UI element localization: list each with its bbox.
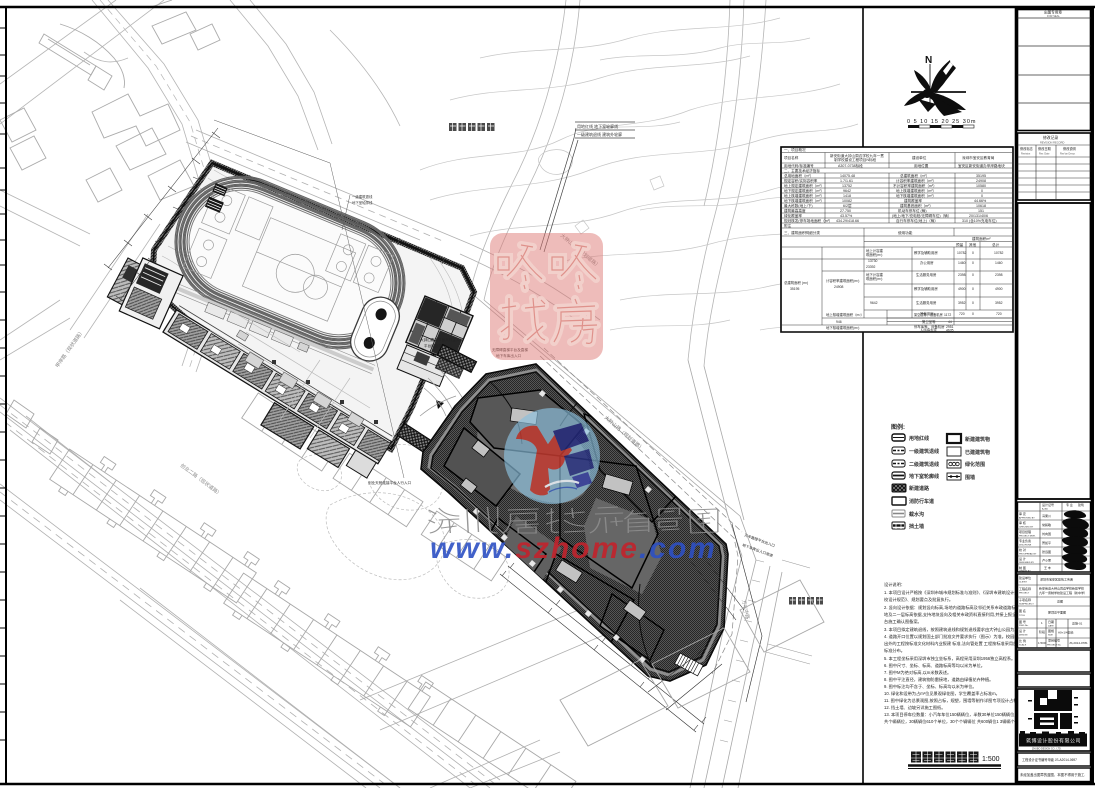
svg-text:审 核: 审 核: [1019, 520, 1026, 525]
svg-text:0: 0: [981, 189, 983, 193]
svg-text:筑博设计股份有限公司: 筑博设计股份有限公司: [1026, 738, 1081, 745]
svg-text:九年一贯制学校建设工程（新中学）: 九年一贯制学校建设工程（新中学）: [1039, 590, 1087, 595]
svg-text:制学校建设工程项目N标段: 制学校建设工程项目N标段: [834, 157, 877, 162]
svg-text:项目编号: 项目编号: [1048, 638, 1060, 643]
svg-text:13752: 13752: [842, 184, 852, 188]
svg-text:6. 图中尺寸、坐标、标高、道路标高等均以米为单位。: 6. 图中尺寸、坐标、标高、道路标高等均以米为单位。: [884, 662, 985, 669]
svg-text:比 例: 比 例: [1019, 638, 1026, 643]
svg-text:自行车停车位(地上)（辆）: 自行车停车位(地上)（辆）: [896, 218, 938, 223]
svg-text:新建建筑物: 新建建筑物: [965, 436, 990, 443]
svg-text:10082: 10082: [842, 199, 852, 203]
svg-text:已建建筑物: 已建建筑物: [965, 449, 990, 456]
svg-text:用地红线 地下室轮廓线: 用地红线 地下室轮廓线: [577, 123, 618, 129]
svg-text:阶段: 阶段: [1039, 629, 1045, 634]
svg-text:SCALE: SCALE: [1019, 644, 1027, 647]
svg-text:项目名称: 项目名称: [784, 155, 799, 160]
svg-text:总建筑面积 (m²): 总建筑面积 (m²): [784, 280, 808, 285]
svg-text:建设单位: 建设单位: [1019, 575, 1031, 580]
svg-text:二级建筑退线: 二级建筑退线: [909, 461, 939, 468]
svg-text:PROOFREAD BY: PROOFREAD BY: [1019, 553, 1037, 556]
svg-text:筑面积(m²): 筑面积(m²): [866, 276, 882, 281]
svg-text:14075.48: 14075.48: [840, 174, 855, 178]
svg-text:0: 0: [972, 261, 974, 265]
svg-text:720: 720: [996, 312, 1002, 316]
svg-text:一、项目概况: 一、项目概况: [784, 147, 806, 152]
svg-text:CHECKED BY: CHECKED BY: [1019, 527, 1034, 529]
svg-text:二、主要技术经济指标: 二、主要技术经济指标: [784, 168, 820, 173]
svg-text:总图: 总图: [1057, 599, 1063, 604]
svg-text:子项名称: 子项名称: [1019, 597, 1031, 602]
svg-text:1460: 1460: [995, 261, 1003, 265]
svg-text:20/131/40/6: 20/131/40/6: [969, 214, 988, 218]
svg-text:0: 0: [972, 312, 974, 316]
svg-text:35195: 35195: [790, 287, 800, 291]
svg-text:11. 图中绿化为总景观图,按照占标，规塑，围墙等制作详图专: 11. 图中绿化为总景观图,按照占标，规塑，围墙等制作详图专项设计占标记位于。: [884, 697, 1034, 704]
svg-text:DESIGNED BY: DESIGNED BY: [1019, 562, 1034, 564]
svg-text:310 (含10%充电车位): 310 (含10%充电车位): [962, 218, 997, 223]
svg-text:N: N: [925, 55, 932, 66]
svg-text:用地代码/标准编号: 用地代码/标准编号: [784, 163, 814, 168]
svg-text:修改记录: 修改记录: [1043, 135, 1058, 140]
svg-text:10618: 10618: [976, 204, 986, 208]
svg-text:用地位置: 用地位置: [914, 163, 929, 168]
svg-text:计容积率建筑面积（m²）: 计容积率建筑面积（m²）: [896, 178, 936, 183]
svg-text:总用地面积（m²）: 总用地面积（m²）: [784, 173, 813, 178]
svg-text:创业天桥连接平台人行入口: 创业天桥连接平台人行入口: [368, 480, 412, 485]
svg-text:贺如平: 贺如平: [1042, 540, 1051, 545]
svg-text:建筑: 建筑: [1078, 502, 1084, 507]
svg-text:DISCIPLINE: DISCIPLINE: [1019, 545, 1032, 547]
svg-text:7. 图中M为绝对标高,以m米数表述。: 7. 图中M为绝对标高,以m米数表述。: [884, 669, 951, 676]
svg-text:设计说明：: 设计说明：: [884, 581, 905, 588]
svg-text:REVISION RECORD: REVISION RECORD: [1040, 141, 1064, 145]
svg-text:DATE: DATE: [1048, 625, 1054, 628]
svg-text:3952: 3952: [995, 301, 1003, 305]
svg-text:10580: 10580: [976, 184, 986, 188]
svg-text:6/2层: 6/2层: [843, 203, 852, 208]
svg-text:0: 0: [972, 287, 974, 291]
svg-text:常毅敏: 常毅敏: [1042, 522, 1051, 527]
svg-text:2398: 2398: [995, 273, 1003, 277]
svg-text:审 定: 审 定: [1019, 511, 1026, 516]
svg-text:屋顶总平面图: 屋顶总平面图: [1048, 610, 1066, 615]
svg-text:办公用房: 办公用房: [920, 260, 934, 265]
svg-text:冯果川: 冯果川: [1042, 513, 1051, 518]
svg-text:深圳市宝安区教育局: 深圳市宝安区教育局: [962, 155, 995, 160]
svg-text:图 名: 图 名: [1019, 608, 1026, 613]
svg-text:标准分布。: 标准分布。: [884, 647, 905, 654]
svg-text:43.57%: 43.57%: [840, 214, 853, 218]
svg-text:DESIGN: DESIGN: [1019, 635, 1029, 637]
svg-text:项目经理: 项目经理: [1019, 529, 1031, 534]
svg-text:机动车停车位 (辆): 机动车停车位 (辆): [898, 208, 927, 213]
svg-text:围墙: 围墙: [965, 474, 975, 481]
svg-text:TITLE: TITLE: [1019, 615, 1025, 617]
svg-text:1:500: 1:500: [1038, 641, 1046, 645]
svg-text:946: 946: [836, 320, 842, 324]
svg-text:CLIENT: CLIENT: [1019, 582, 1027, 584]
svg-text:预留: 预留: [956, 242, 964, 247]
svg-text:地下核增建筑面积（m²）: 地下核增建筑面积（m²）: [784, 198, 824, 203]
svg-text:9642: 9642: [843, 189, 851, 193]
svg-text:一级建筑退线: 一级建筑退线: [352, 194, 373, 199]
svg-text:宝安区新安街道办甲岸路地块: 宝安区新安街道办甲岸路地块: [958, 163, 1005, 168]
svg-text:1418: 1418: [843, 194, 851, 198]
svg-text:地上核增建筑面积（m²）: 地上核增建筑面积（m²）: [896, 188, 936, 193]
svg-text:日期: 日期: [1048, 619, 1054, 624]
svg-text:台施工确认图备案。: 台施工确认图备案。: [884, 618, 922, 625]
svg-text:3. 本项目拟定建筑退线，按照建筑退线和规划退线要求由大钟山: 3. 本项目拟定建筑退线，按照建筑退线和规划退线要求由大钟山公园为准。: [884, 626, 1023, 633]
svg-text:地上核增建筑面积（m²）: 地上核增建筑面积（m²）: [826, 312, 864, 317]
svg-text:44.66%: 44.66%: [974, 199, 987, 203]
svg-text:建筑最高高度: 建筑最高高度: [784, 208, 806, 213]
svg-text:其他: 其他: [969, 242, 977, 247]
svg-text:SIZE: SIZE: [1048, 635, 1053, 637]
svg-text:深圳市宝安区建筑工务署: 深圳市宝安区建筑工务署: [1040, 577, 1073, 582]
svg-text:4900: 4900: [958, 287, 966, 291]
svg-text:地下室轮廓线: 地下室轮廓线: [909, 473, 939, 480]
svg-text:王 丰: 王 丰: [1044, 565, 1051, 570]
svg-text:地下核增建筑面积（m²）: 地下核增建筑面积（m²）: [896, 193, 936, 198]
svg-text:地及二一层标高依据,支持地块竖向及相关市政资料直接利用,并接: 地及二一层标高依据,支持地块竖向及相关市政资料直接利用,并接上报全规定平: [884, 611, 1029, 618]
svg-text:建筑面积m²: 建筑面积m²: [972, 236, 991, 241]
svg-text:1460: 1460: [958, 261, 966, 265]
svg-text:不计容积率建筑面积（m²）: 不计容积率建筑面积（m²）: [893, 183, 937, 188]
svg-text:三、建筑面积明细分类: 三、建筑面积明细分类: [784, 230, 820, 235]
svg-text:24908: 24908: [976, 179, 986, 183]
svg-text:建设单位: 建设单位: [912, 155, 927, 160]
svg-text:图幅: 图幅: [1048, 628, 1054, 633]
svg-text:大钟山路接平台人行主入口: 大钟山路接平台人行主入口: [420, 337, 464, 342]
svg-text:设 计: 设 计: [1019, 556, 1026, 561]
svg-text:消防行车道: 消防行车道: [909, 498, 934, 505]
svg-text:地下规定建筑面积（m²）: 地下规定建筑面积（m²）: [784, 188, 824, 193]
svg-text:A0+1/4加长: A0+1/4加长: [1058, 630, 1074, 635]
svg-text:教学及辅助用房: 教学及辅助用房: [914, 286, 938, 291]
svg-text:绿化覆盖率: 绿化覆盖率: [784, 213, 802, 218]
svg-text:校设计规范》、规划要点及批复执行。: 校设计规范》、规划要点及批复执行。: [884, 596, 953, 603]
svg-text:生活服务用房: 生活服务用房: [916, 272, 937, 277]
svg-text:地上核增建筑面积（m²）: 地上核增建筑面积（m²）: [784, 193, 824, 198]
svg-text:12. 挡土墙、边坡另详施工图纸。: 12. 挡土墙、边坡另详施工图纸。: [884, 704, 945, 711]
svg-text:修改日期: 修改日期: [1038, 146, 1051, 151]
svg-text:1:500: 1:500: [982, 756, 1000, 763]
svg-text:修改标志: 修改标志: [1020, 146, 1034, 151]
svg-text:SUBPROJECT: SUBPROJECT: [1019, 604, 1034, 606]
svg-text:5. 本工程坐标采用深圳市独立坐标系，高程采用深圳1956独: 5. 本工程坐标采用深圳市独立坐标系，高程采用深圳1956独立高程系。: [884, 655, 1015, 662]
svg-text:地下核增建筑面积(m²): 地下核增建筑面积(m²): [826, 325, 859, 330]
svg-text:绿化范围: 绿化范围: [965, 461, 985, 468]
svg-text:151: 151: [978, 209, 984, 213]
svg-text:44: 44: [948, 320, 952, 324]
svg-text:修改说明: 修改说明: [1063, 146, 1076, 151]
svg-text:计容积率建筑面积(m²): 计容积率建筑面积(m²): [826, 278, 859, 283]
svg-text:新建道路: 新建道路: [909, 485, 930, 492]
svg-text:设计证号: 设计证号: [1042, 502, 1054, 507]
svg-text:1.7/1.61: 1.7/1.61: [840, 179, 853, 183]
svg-text:10782: 10782: [957, 251, 967, 255]
svg-text:A307-0738标段: A307-0738标段: [838, 163, 863, 168]
svg-text:使用功能: 使用功能: [898, 230, 913, 235]
svg-text:筑面积(m²): 筑面积(m²): [866, 252, 882, 257]
svg-text:建筑覆盖率: 建筑覆盖率: [904, 198, 922, 203]
svg-text:720: 720: [959, 312, 965, 316]
svg-text:工程设计证书编号甲级 JS-A2014-0697: 工程设计证书编号甲级 JS-A2014-0697: [1022, 757, 1077, 762]
svg-text:地上规定建筑面积（m²）: 地上规定建筑面积（m²）: [784, 183, 824, 188]
svg-text:3952: 3952: [958, 301, 966, 305]
svg-text:专业负责: 专业负责: [1019, 538, 1031, 543]
svg-text:10. 绿化和设带为占m²位见景观绿花图，学生覆盖率占标准m: 10. 绿化和设带为占m²位见景观绿花图，学生覆盖率占标准m。: [884, 690, 1000, 697]
svg-text:警卫室等: 警卫室等: [922, 319, 936, 324]
svg-text:35195: 35195: [976, 174, 986, 178]
svg-text:0: 0: [972, 251, 974, 255]
svg-text:4900: 4900: [995, 287, 1003, 291]
svg-text:建筑基底面积（m²）: 建筑基底面积（m²）: [900, 203, 933, 208]
svg-text:Rev. Date: Rev. Date: [1039, 153, 1050, 156]
svg-text:0: 0: [972, 301, 974, 305]
svg-text:未经加盖出图章的蓝图，本图不得用于施工.: 未经加盖出图章的蓝图，本图不得用于施工.: [1020, 772, 1085, 777]
svg-text:刘向国: 刘向国: [1042, 531, 1051, 536]
svg-text:校 对: 校 对: [1019, 547, 1026, 552]
svg-text:新安街道大钟山周边学校新建学校: 新安街道大钟山周边学校新建学校: [1039, 586, 1084, 591]
svg-text:规定容积/实际容积率: 规定容积/实际容积率: [784, 178, 818, 183]
svg-text:专 业: 专 业: [1066, 502, 1073, 507]
svg-text:FOR SEAL: FOR SEAL: [1047, 14, 1060, 18]
svg-text:DWG No.: DWG No.: [1019, 625, 1029, 627]
svg-text:PROJECT MGR.: PROJECT MGR.: [1019, 536, 1036, 538]
svg-text:23392: 23392: [866, 265, 876, 269]
svg-text:A-360: A-360: [1042, 508, 1049, 511]
svg-text:Revision: Revision: [1021, 153, 1031, 156]
svg-text:挡土墙: 挡土墙: [908, 523, 924, 530]
svg-text:总计: 总计: [992, 242, 1000, 247]
svg-text:设 计: 设 计: [1019, 628, 1026, 633]
svg-text:2398: 2398: [958, 273, 966, 277]
svg-text:JS,2014-0781: JS,2014-0781: [1069, 641, 1088, 645]
svg-text:9. 图中标注均不含于、坐标、标高均以米为单位。: 9. 图中标注均不含于、坐标、标高均以米为单位。: [884, 683, 977, 690]
svg-text:架空层等、设备机房: 架空层等、设备机房: [914, 312, 943, 317]
svg-text:截水沟: 截水沟: [909, 511, 924, 518]
svg-text:8. 图中平注直径，建筑物防雷接地，道路由绿植花卉种植。: 8. 图中平注直径，建筑物防雷接地，道路由绿植花卉种植。: [884, 676, 993, 683]
svg-text:一级建筑退线: 一级建筑退线: [909, 448, 939, 455]
svg-text:平台绿化带: 平台绿化带: [424, 343, 442, 348]
svg-text:图例:: 图例:: [891, 423, 905, 431]
svg-text:Rev'ion Descr.: Rev'ion Descr.: [1060, 153, 1076, 156]
svg-text:制 图: 制 图: [1019, 565, 1026, 570]
svg-text:最大栋数(地上/下): 最大栋数(地上/下): [784, 203, 813, 208]
svg-text:1172: 1172: [944, 313, 951, 317]
svg-text:工程名称: 工程名称: [1019, 586, 1031, 591]
svg-text:24908: 24908: [834, 285, 844, 289]
svg-text:地下室轮廓线: 地下室轮廓线: [352, 200, 373, 205]
svg-text:ZHUBO DESIGN CO., LTD.: ZHUBO DESIGN CO., LTD.: [1032, 748, 1062, 751]
svg-text:生活服务用房: 生活服务用房: [916, 300, 937, 305]
svg-text:PROJECT: PROJECT: [1019, 593, 1030, 595]
svg-text:(地上/地下/充电桩/无障碍车位)（辆）: (地上/地下/充电桩/无障碍车位)（辆）: [892, 213, 951, 218]
svg-text:10782: 10782: [994, 251, 1004, 255]
svg-text:0: 0: [981, 194, 983, 198]
svg-text:规划核发(停车场地面积（m²）: 规划核发(停车场地面积（m²）: [784, 218, 833, 223]
svg-text:DRAWN BY: DRAWN BY: [1019, 570, 1031, 573]
svg-text:附注: 附注: [784, 223, 792, 228]
svg-text:434.29/418.66: 434.29/418.66: [836, 219, 859, 223]
svg-text:教学及辅助用房: 教学及辅助用房: [914, 250, 938, 255]
svg-text:27.750: 27.750: [840, 209, 851, 213]
svg-text:一级建筑退线 建筑外轮廓: 一级建筑退线 建筑外轮廓: [577, 131, 622, 137]
svg-text:APPROVED BY: APPROVED BY: [1019, 517, 1035, 520]
svg-text:0: 0: [972, 273, 974, 277]
svg-text:图 号: 图 号: [1019, 619, 1026, 624]
svg-text:13730: 13730: [868, 259, 878, 263]
svg-text:卢小荣: 卢小荣: [1042, 558, 1051, 563]
svg-text:0 5 10 15 20 25 30m: 0 5 10 15 20 25 30m: [907, 119, 976, 125]
svg-text:张远图: 张远图: [1042, 549, 1051, 554]
svg-text:9642: 9642: [870, 301, 878, 305]
svg-text:出图专用章: 出图专用章: [1044, 10, 1062, 15]
svg-text:PROJECT No.: PROJECT No.: [1047, 645, 1062, 647]
svg-text:www.szhome.com: www.szhome.com: [430, 532, 717, 565]
svg-text:总施-01: 总施-01: [1072, 621, 1083, 626]
svg-text:总建筑面积（m²）: 总建筑面积（m²）: [900, 173, 929, 178]
svg-text:用地红线: 用地红线: [908, 435, 929, 442]
